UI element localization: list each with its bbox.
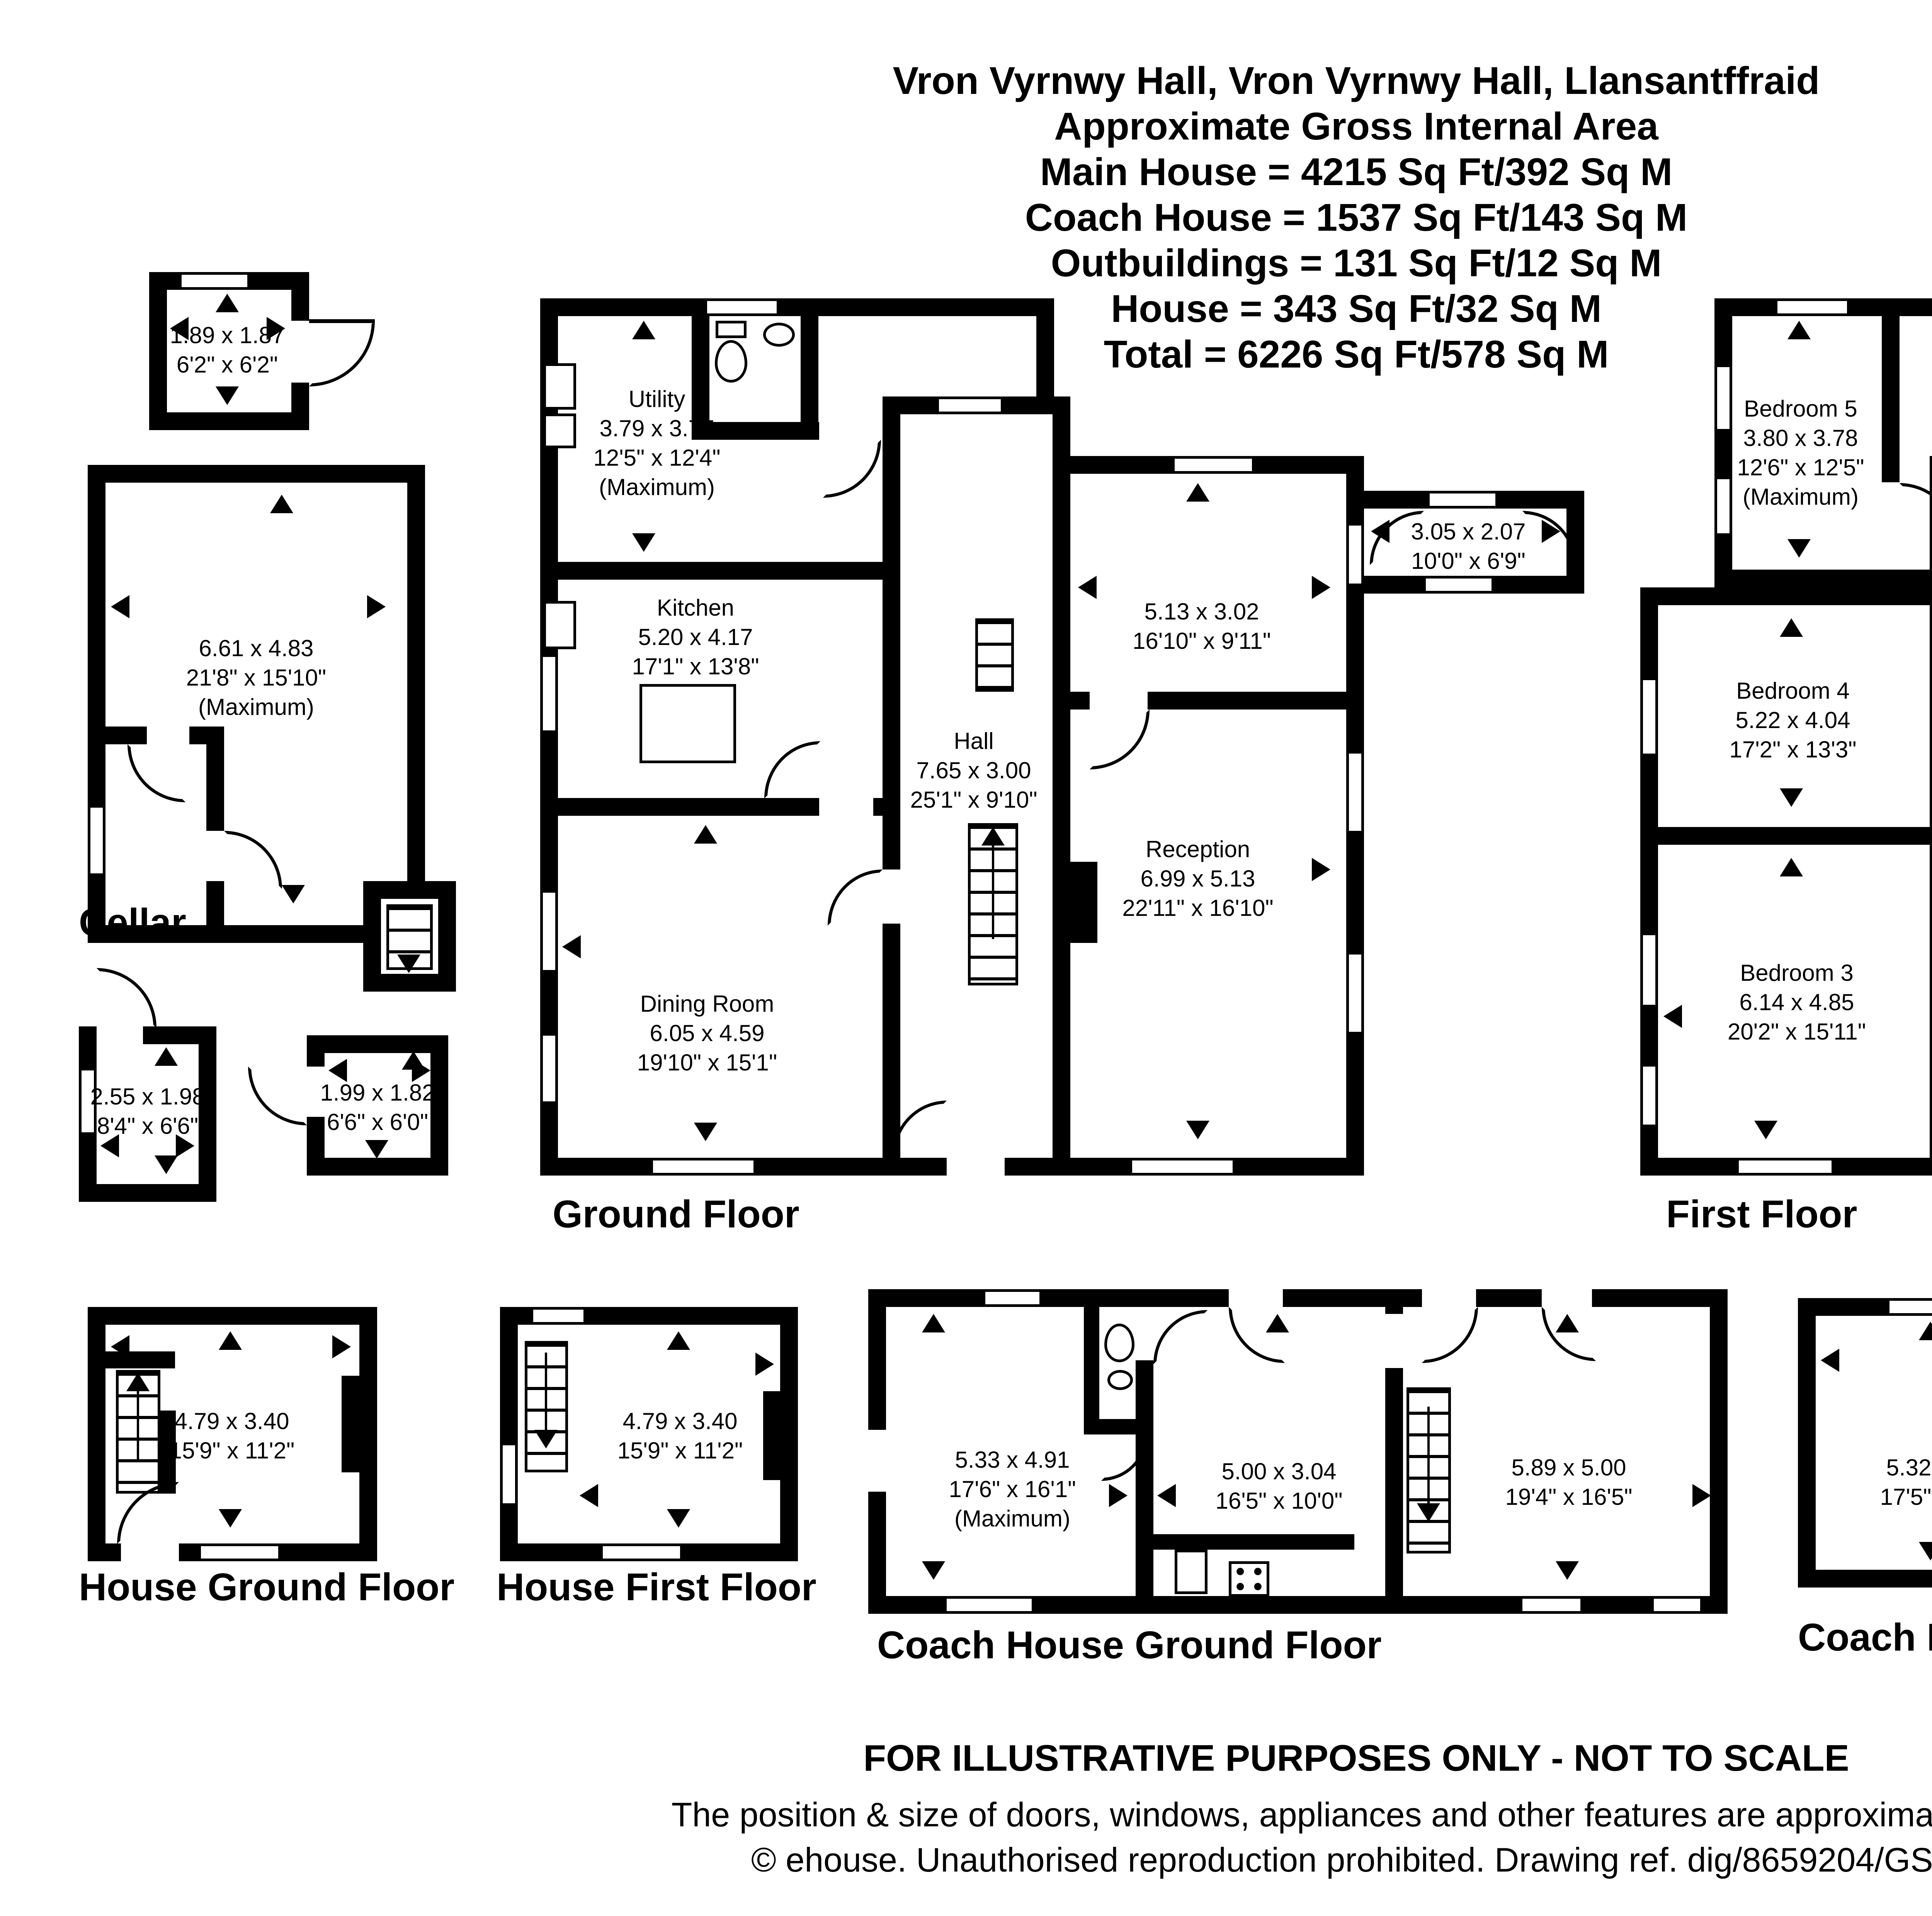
door-arc-icon	[97, 968, 156, 1028]
window	[1175, 456, 1252, 474]
chimney-breast	[763, 1391, 798, 1480]
measure-arrow-right-icon	[1109, 1484, 1128, 1507]
kitchen-island-icon	[639, 684, 736, 763]
measure-arrow-right-icon	[412, 1059, 430, 1082]
measure-arrow-up-icon	[1266, 1314, 1289, 1332]
window	[1430, 491, 1495, 509]
measure-arrow-right-icon	[1542, 520, 1560, 543]
door-opening	[1422, 1289, 1476, 1307]
room-label-bedroom4: Bedroom 4 5.22 x 4.04 17'2" x 13'3"	[1729, 676, 1856, 764]
floor-label-ground: Ground Floor	[553, 1192, 799, 1237]
toilet-icon	[1104, 1324, 1134, 1362]
door-opening	[819, 798, 873, 816]
measure-arrow-up-icon	[667, 1331, 690, 1350]
room-label-kitchen: Kitchen 5.20 x 4.17 17'1" x 13'8"	[632, 593, 759, 681]
window	[707, 298, 777, 316]
stairs-down-arrow-icon	[397, 955, 420, 973]
measure-arrow-up-icon	[270, 495, 293, 513]
measure-arrow-right-icon	[332, 1335, 351, 1358]
measure-arrow-right-icon	[1312, 576, 1330, 599]
floor-label-cellar: Cellar	[79, 900, 186, 945]
measure-arrow-left-icon	[111, 1335, 129, 1358]
toilet-icon	[715, 340, 747, 383]
room-label-dining: Dining Room 6.05 x 4.59 19'10" x 15'1"	[637, 989, 777, 1077]
measure-arrow-right-icon	[755, 1353, 774, 1376]
room-label-coach-ff-left: 5.32 x 4.92 17'5" x 16'2"	[1880, 1453, 1932, 1512]
measure-arrow-down-icon	[365, 1140, 388, 1159]
measure-arrow-down-icon	[694, 1123, 717, 1141]
measure-arrow-down-icon	[632, 533, 655, 552]
room-label-utility: Utility 3.79 x 3.77 12'5" x 12'4" (Maxim…	[593, 385, 720, 502]
door-arc-icon	[309, 321, 375, 386]
window	[88, 808, 105, 873]
measure-arrow-left-icon	[1821, 1349, 1839, 1372]
window	[1654, 1596, 1700, 1614]
page-title: Vron Vyrnwy Hall, Vron Vyrnwy Hall, Llan…	[777, 58, 1932, 104]
measure-arrow-up-icon	[219, 1331, 242, 1350]
measure-arrow-left-icon	[328, 1059, 347, 1082]
stairs-down-arrow-icon	[1417, 1503, 1440, 1522]
floor-label-coach-ground: Coach House Ground Floor	[877, 1623, 1382, 1668]
stairs-direction-line-icon	[992, 842, 994, 939]
measure-arrow-right-icon	[367, 595, 386, 618]
window	[1132, 1158, 1233, 1176]
sink-icon	[1107, 1370, 1133, 1390]
floorplan-canvas: Vron Vyrnwy Hall, Vron Vyrnwy Hall, Llan…	[0, 0, 1932, 1916]
measure-arrow-up-icon	[1556, 1314, 1579, 1332]
room-label-cellar: 6.61 x 4.83 21'8" x 15'10" (Maximum)	[186, 634, 326, 722]
door-opening	[947, 1158, 1005, 1176]
window	[939, 396, 1001, 414]
wall	[1882, 316, 1900, 482]
door-opening	[206, 831, 224, 881]
ground-floor-right-block	[1053, 456, 1364, 1176]
window	[533, 1307, 583, 1325]
room-label-outbuilding-a: 2.55 x 1.98 8'4" x 6'6"	[90, 1082, 205, 1141]
stairs-up-arrow-icon	[981, 827, 1005, 846]
window	[1640, 935, 1658, 1005]
door-opening	[1090, 692, 1148, 710]
window	[603, 1543, 680, 1561]
measure-arrow-left-icon	[170, 317, 189, 340]
wall	[1084, 1419, 1153, 1434]
wall	[1084, 1307, 1099, 1434]
measure-arrow-down-icon	[922, 1561, 945, 1580]
stairs-direction-line-icon	[137, 1383, 139, 1461]
door-leaf-icon	[309, 319, 375, 323]
measure-arrow-right-icon	[1312, 858, 1330, 881]
toilet-cistern-icon	[716, 321, 747, 338]
first-floor-landing-block	[1930, 456, 1932, 1176]
door-opening	[121, 1543, 179, 1561]
door-arc-icon	[248, 1067, 307, 1125]
window	[1426, 576, 1492, 594]
hob-icon	[1229, 1561, 1269, 1597]
window	[1714, 367, 1732, 429]
measure-arrow-left-icon	[1078, 576, 1097, 599]
measure-arrow-right-icon	[1692, 1484, 1711, 1507]
floor-label-house-first: House First Floor	[497, 1565, 816, 1610]
window	[985, 1289, 1039, 1307]
measure-arrow-up-icon	[1787, 321, 1811, 339]
wall	[1136, 1360, 1153, 1596]
sink-icon	[763, 323, 795, 347]
room-label-coach-gf-left: 5.33 x 4.91 17'6" x 16'1" (Maximum)	[949, 1445, 1076, 1533]
measure-arrow-left-icon	[100, 1134, 119, 1157]
room-label-bedroom3: Bedroom 3 6.14 x 4.85 20'2" x 15'11"	[1728, 958, 1866, 1046]
floor-label-house-ground: House Ground Floor	[79, 1565, 454, 1610]
window	[1346, 955, 1364, 1032]
room-label-porch: 3.05 x 2.07 10'0" x 6'9"	[1411, 517, 1526, 576]
stairs-down-arrow-icon	[534, 1430, 558, 1448]
measure-arrow-down-icon	[216, 386, 239, 405]
measure-arrow-up-icon	[155, 1047, 178, 1066]
measure-arrow-up-icon	[694, 825, 717, 844]
measure-arrow-left-icon	[562, 935, 581, 958]
window	[1346, 754, 1364, 831]
wall	[1153, 1534, 1354, 1550]
measure-arrow-down-icon	[667, 1509, 690, 1528]
measure-arrow-up-icon	[1780, 618, 1803, 637]
measure-arrow-down-icon	[282, 885, 305, 904]
first-floor-left-block	[1640, 587, 1932, 1176]
window	[653, 1158, 753, 1176]
window	[1889, 1298, 1932, 1316]
window	[1777, 298, 1847, 316]
stairs-direction-line-icon	[545, 1353, 547, 1430]
door-opening	[1542, 1289, 1592, 1307]
measure-arrow-down-icon	[1787, 539, 1811, 558]
area-outbuildings: Outbuildings = 131 Sq Ft/12 Sq M	[777, 240, 1932, 286]
measure-arrow-up-icon	[922, 1314, 945, 1332]
area-coach-house: Coach House = 1537 Sq Ft/143 Sq M	[777, 195, 1932, 240]
wall	[1070, 862, 1097, 943]
door-opening	[1385, 1314, 1403, 1368]
footer-copyright: © ehouse. Unauthorised reproduction proh…	[751, 1840, 1932, 1880]
window	[182, 272, 247, 290]
door-opening	[1229, 1289, 1283, 1307]
door-opening	[291, 321, 309, 383]
window	[540, 1036, 558, 1101]
door-opening	[883, 870, 900, 924]
stairs-direction-line-icon	[1427, 1407, 1430, 1503]
window	[1739, 1158, 1832, 1176]
window	[500, 1445, 518, 1503]
measure-arrow-left-icon	[580, 1484, 598, 1507]
stairs-icon	[975, 618, 1014, 692]
window	[1640, 680, 1658, 754]
wall	[1658, 827, 1930, 845]
window	[540, 893, 558, 970]
measure-arrow-up-icon	[1780, 858, 1803, 876]
measure-arrow-down-icon	[1754, 1121, 1777, 1139]
appliance-icon	[543, 601, 576, 649]
measure-arrow-left-icon	[1663, 1005, 1682, 1028]
room-label-gf-room: 5.13 x 3.02 16'10" x 9'11"	[1133, 597, 1271, 656]
kitchen-sink-icon	[1175, 1550, 1207, 1594]
chimney-breast	[342, 1376, 377, 1472]
room-label-bedroom5: Bedroom 5 3.80 x 3.78 12'6" x 12'5" (Max…	[1737, 394, 1864, 512]
measure-arrow-up-icon	[1919, 1322, 1932, 1340]
door-opening	[147, 727, 189, 744]
door-arc-icon	[1900, 483, 1932, 541]
room-label-coach-gf-right: 5.89 x 5.00 19'4" x 16'5"	[1505, 1453, 1632, 1512]
measure-arrow-right-icon	[176, 1134, 194, 1157]
window	[540, 657, 558, 730]
measure-arrow-up-icon	[216, 294, 239, 312]
area-main-house: Main House = 4215 Sq Ft/392 Sq M	[777, 149, 1932, 195]
wall	[801, 316, 818, 440]
measure-arrow-down-icon	[155, 1155, 178, 1174]
floor-label-coach-first: Coach House First Floor	[1798, 1615, 1932, 1660]
window	[1640, 1067, 1658, 1125]
measure-arrow-down-icon	[1556, 1561, 1579, 1580]
room-label-house-ff: 4.79 x 3.40 15'9" x 11'2"	[617, 1407, 743, 1465]
window	[1714, 479, 1732, 533]
door-opening	[868, 1430, 886, 1492]
room-label-reception: Reception 6.99 x 5.13 22'11" x 16'10"	[1122, 835, 1273, 923]
title-subtitle: Approximate Gross Internal Area	[777, 104, 1932, 149]
appliance-icon	[543, 363, 576, 410]
measure-arrow-down-icon	[1780, 788, 1803, 807]
appliance-icon	[543, 413, 576, 448]
room-label-house-gf: 4.79 x 3.40 15'9" x 11'2"	[169, 1407, 295, 1465]
window	[1522, 1596, 1580, 1614]
coach-house-first-floor-plan	[1798, 1298, 1932, 1588]
measure-arrow-left-icon	[1157, 1484, 1176, 1507]
stairs-up-arrow-icon	[126, 1373, 150, 1391]
measure-arrow-up-icon	[1186, 483, 1209, 502]
measure-arrow-up-icon	[632, 321, 655, 339]
room-label-hall: Hall 7.65 x 3.00 25'1" x 9'10"	[910, 727, 1037, 815]
floor-label-first: First Floor	[1666, 1192, 1857, 1237]
measure-arrow-down-icon	[219, 1509, 242, 1528]
window	[1346, 526, 1364, 584]
window	[947, 1596, 1032, 1614]
footer-note: The position & size of doors, windows, a…	[672, 1795, 1932, 1834]
measure-arrow-right-icon	[267, 317, 285, 340]
room-label-outbuilding-b: 1.99 x 1.82 6'6" x 6'0"	[320, 1078, 435, 1137]
room-label-coach-gf-mid: 5.00 x 3.04 16'5" x 10'0"	[1215, 1457, 1342, 1516]
measure-arrow-down-icon	[1186, 1121, 1209, 1139]
measure-arrow-down-icon	[1919, 1542, 1932, 1560]
measure-arrow-left-icon	[111, 595, 129, 618]
footer-disclaimer: FOR ILLUSTRATIVE PURPOSES ONLY - NOT TO …	[863, 1737, 1849, 1780]
window	[201, 1543, 278, 1561]
door-opening	[97, 1026, 143, 1044]
measure-arrow-left-icon	[1371, 520, 1389, 543]
